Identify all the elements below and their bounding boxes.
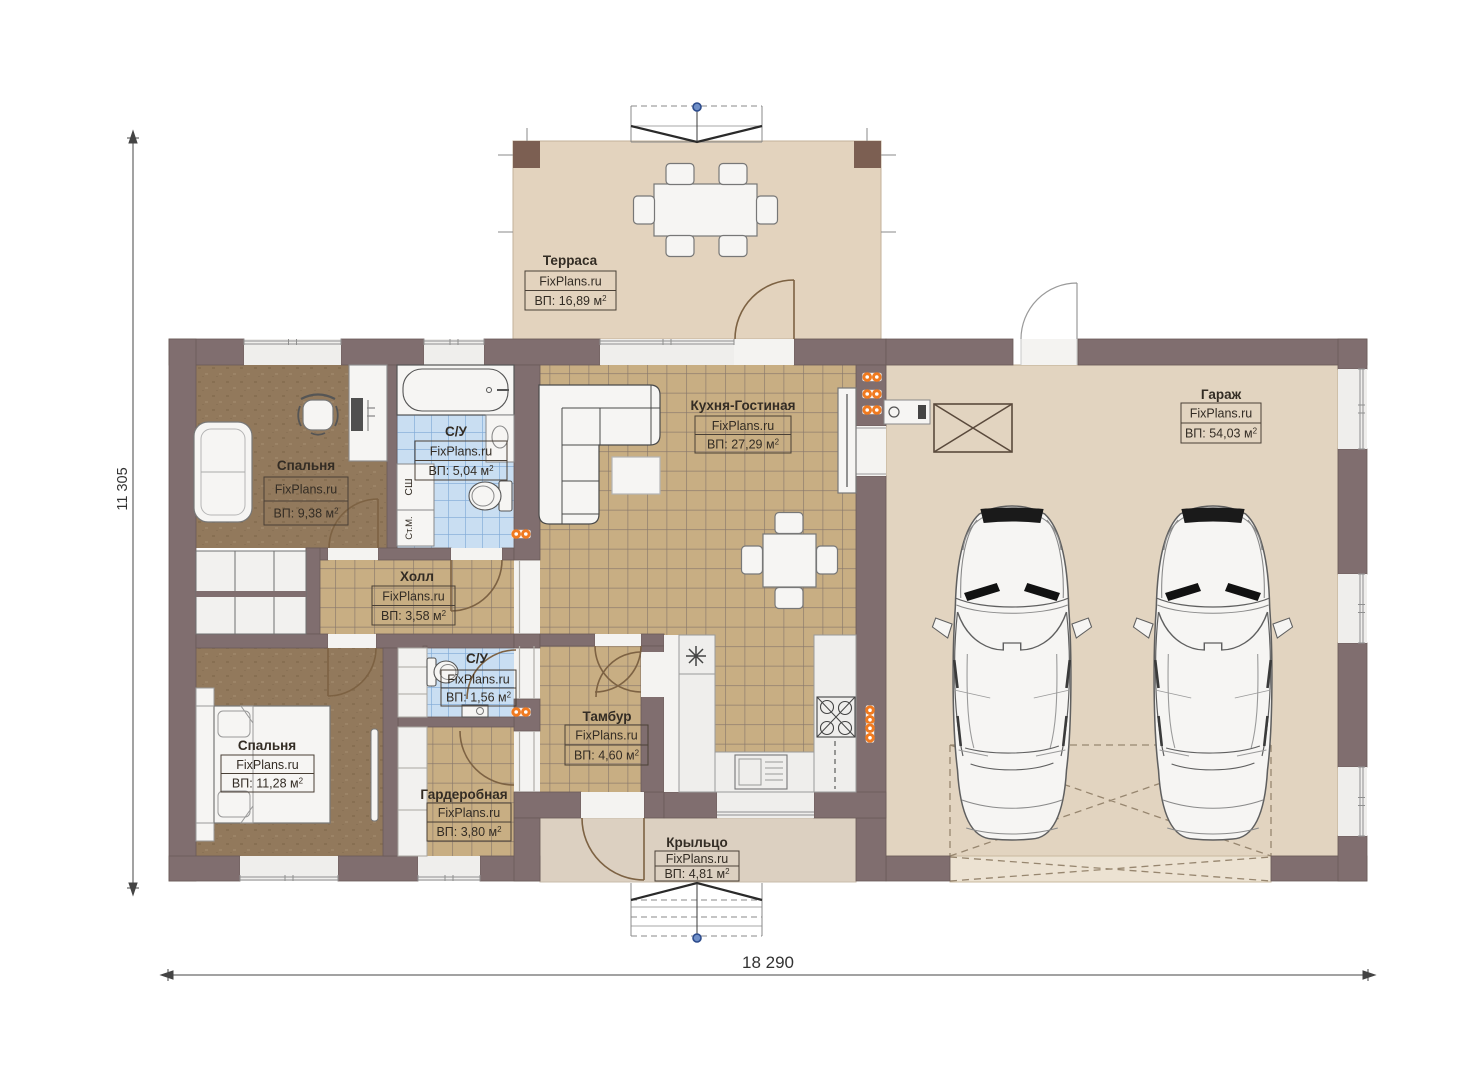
svg-text:Крыльцо: Крыльцо xyxy=(666,835,727,850)
svg-text:ВП: 3,80 м2: ВП: 3,80 м2 xyxy=(436,825,502,839)
svg-text:FixPlans.ru: FixPlans.ru xyxy=(712,419,775,433)
svg-text:Спальня: Спальня xyxy=(238,738,296,753)
svg-text:ВП: 5,04 м2: ВП: 5,04 м2 xyxy=(428,464,494,478)
svg-text:FixPlans.ru: FixPlans.ru xyxy=(275,483,338,497)
svg-text:Ст.М.: Ст.М. xyxy=(404,516,415,539)
svg-text:С/У: С/У xyxy=(466,651,489,666)
svg-text:ВП: 4,81 м2: ВП: 4,81 м2 xyxy=(664,867,730,881)
svg-text:ВП: 4,60 м2: ВП: 4,60 м2 xyxy=(574,749,640,763)
svg-text:Гараж: Гараж xyxy=(1201,387,1242,402)
svg-text:FixPlans.ru: FixPlans.ru xyxy=(447,673,510,687)
svg-text:ВП: 27,29 м2: ВП: 27,29 м2 xyxy=(707,437,780,451)
svg-text:FixPlans.ru: FixPlans.ru xyxy=(430,444,493,458)
svg-text:FixPlans.ru: FixPlans.ru xyxy=(539,274,602,288)
svg-text:ВП: 11,28 м2: ВП: 11,28 м2 xyxy=(232,776,304,790)
svg-text:Спальня: Спальня xyxy=(277,458,335,473)
svg-text:Кухня-Гостиная: Кухня-Гостиная xyxy=(691,398,796,413)
svg-text:ВП: 54,03 м2: ВП: 54,03 м2 xyxy=(1185,427,1258,441)
svg-text:FixPlans.ru: FixPlans.ru xyxy=(575,729,638,743)
svg-text:FixPlans.ru: FixPlans.ru xyxy=(1190,407,1253,421)
svg-text:Холл: Холл xyxy=(400,569,434,584)
svg-text:Тамбур: Тамбур xyxy=(583,709,632,724)
svg-text:ВП: 3,58 м2: ВП: 3,58 м2 xyxy=(381,609,447,623)
svg-text:FixPlans.ru: FixPlans.ru xyxy=(236,758,299,772)
svg-text:FixPlans.ru: FixPlans.ru xyxy=(382,589,445,603)
svg-text:СШ: СШ xyxy=(403,478,415,495)
svg-text:ВП: 1,56 м2: ВП: 1,56 м2 xyxy=(446,691,512,705)
svg-text:FixPlans.ru: FixPlans.ru xyxy=(438,806,501,820)
svg-text:ВП: 9,38 м2: ВП: 9,38 м2 xyxy=(273,507,339,521)
svg-text:Гардеробная: Гардеробная xyxy=(420,787,507,802)
svg-text:ВП: 16,89 м2: ВП: 16,89 м2 xyxy=(534,294,607,308)
svg-text:Терраса: Терраса xyxy=(543,253,598,268)
svg-text:11 305: 11 305 xyxy=(115,467,131,510)
svg-text:FixPlans.ru: FixPlans.ru xyxy=(666,852,729,866)
svg-text:18 290: 18 290 xyxy=(742,953,794,972)
svg-text:С/У: С/У xyxy=(445,424,468,439)
